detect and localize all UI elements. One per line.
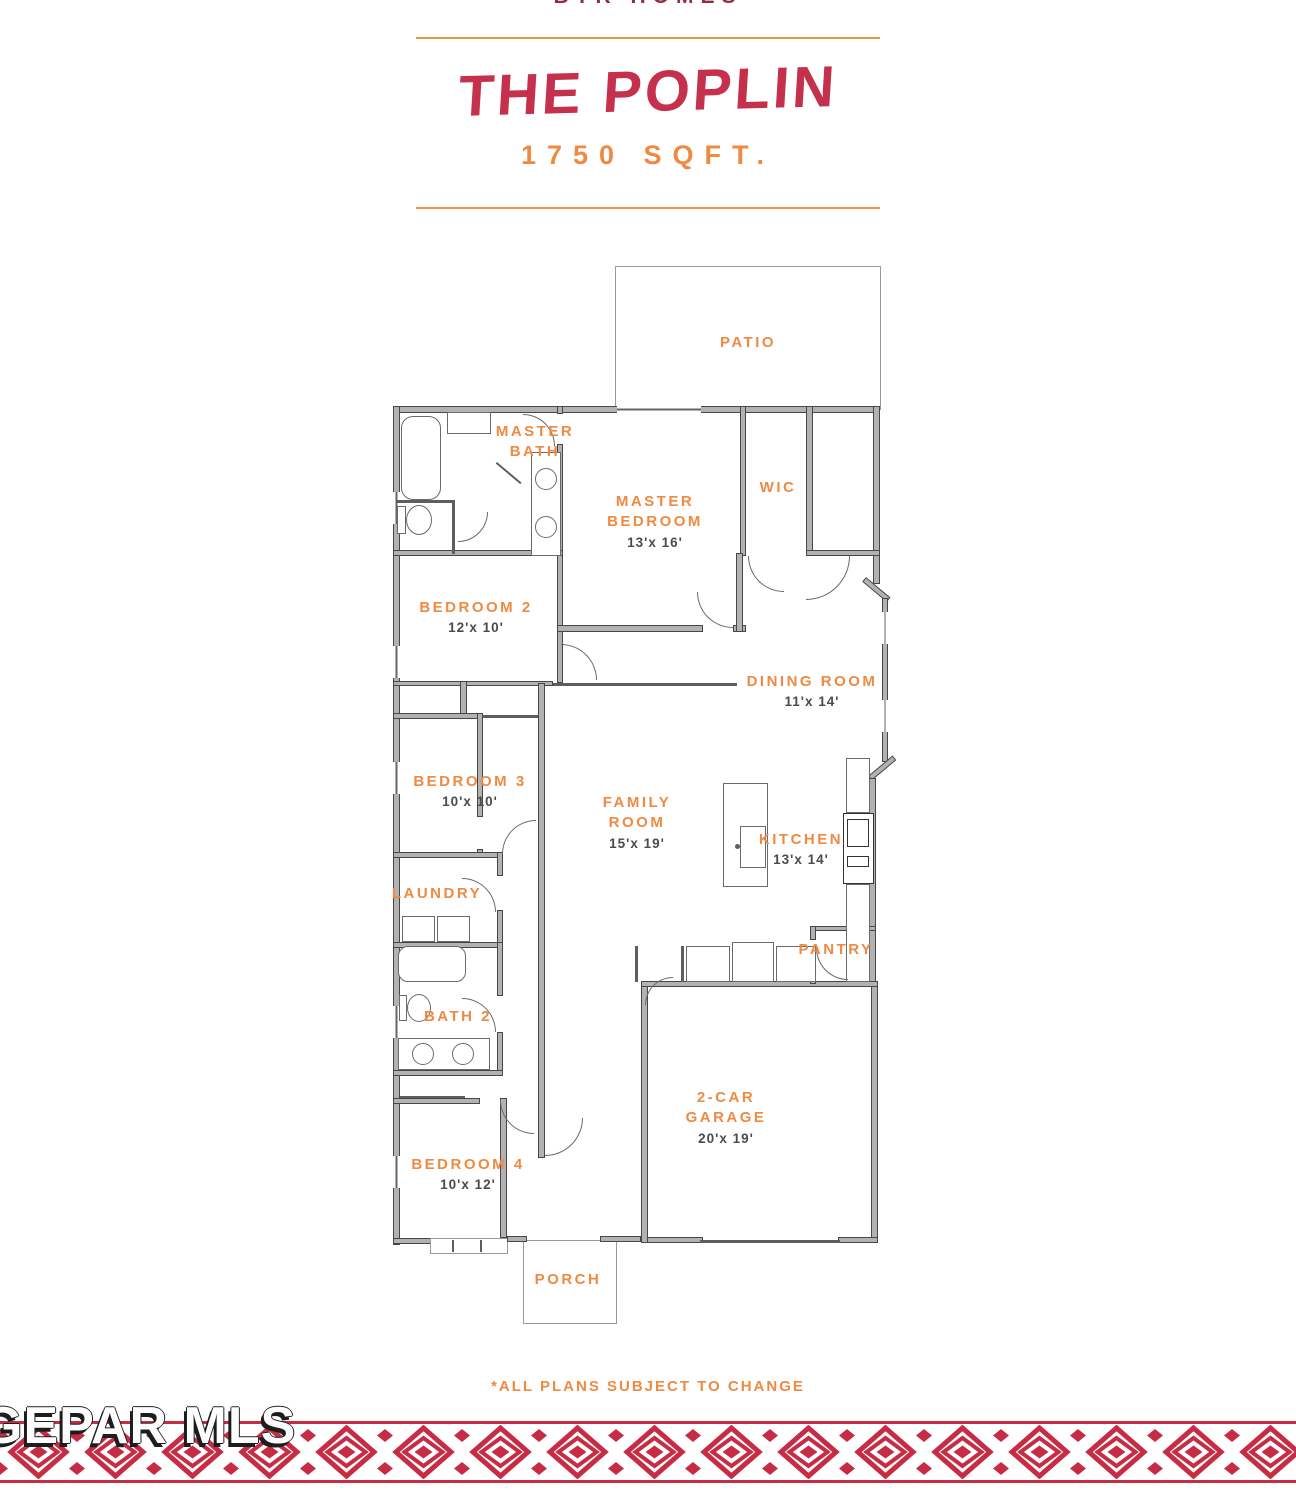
wall-segment (736, 553, 743, 632)
sink (535, 516, 557, 538)
wall-segment (507, 1236, 527, 1242)
wall-segment (873, 406, 880, 584)
wall-segment (838, 1237, 878, 1243)
wall-segment (871, 985, 878, 1243)
wall-segment (393, 1098, 480, 1104)
room-label-kitchen: KITCHEN 13'x 14' (759, 830, 843, 867)
wall-line (635, 946, 638, 982)
garage-door (700, 1240, 840, 1243)
wall-segment (557, 625, 703, 632)
wall-segment (600, 1236, 641, 1242)
wall-line (681, 946, 684, 982)
room-label-bedroom3: BEDROOM 3 10'x 10' (413, 772, 526, 809)
plan-sqft: 1750 SQFT. (0, 140, 1296, 171)
room-label-bedroom2: BEDROOM 2 12'x 10' (419, 598, 532, 635)
bathtub (401, 416, 441, 500)
builder-brand-cutoff: BTR HOMES (0, 0, 1296, 9)
room-label-pantry: PANTRY (799, 940, 874, 960)
wall-line (553, 683, 737, 686)
room-label-patio: PATIO (720, 333, 776, 353)
dryer (437, 916, 470, 942)
bay-window (430, 1238, 508, 1254)
wall-line (396, 500, 454, 503)
wall-segment (497, 910, 503, 946)
room-label-master-bath: MASTER BATH (489, 422, 581, 463)
sink (535, 468, 557, 490)
faucet (735, 844, 740, 849)
kitchen-counter (846, 758, 870, 813)
header-rule-bottom (416, 207, 880, 209)
room-label-laundry: LAUNDRY (392, 884, 482, 904)
window (617, 406, 701, 413)
wall-segment (393, 852, 503, 858)
wall-segment (393, 681, 553, 686)
toilet (397, 506, 406, 534)
window (393, 1156, 400, 1188)
toilet (406, 505, 432, 535)
room-label-bedroom4: BEDROOM 4 10'x 12' (411, 1155, 524, 1192)
window (882, 612, 888, 644)
wall-segment (810, 926, 816, 940)
wall-segment (641, 1237, 703, 1243)
bay-window-ticks (452, 1240, 454, 1252)
door-arc (458, 512, 488, 542)
wall-segment (557, 406, 563, 414)
room-label-dining: DINING ROOM 11'x 14' (747, 672, 878, 709)
wall-line (483, 715, 543, 718)
floor-plan-page: BTR HOMES THE POPLIN 1750 SQFT. (0, 0, 1296, 1494)
wall-segment (740, 406, 746, 556)
room-label-master-bedroom: MASTER BEDROOM 13'x 16' (589, 492, 721, 550)
locker (732, 942, 774, 982)
toilet (399, 995, 407, 1021)
window (882, 700, 888, 732)
door-arc (545, 1118, 583, 1156)
stove-burners (847, 819, 869, 847)
sink (412, 1043, 434, 1065)
shower-shelf (447, 412, 491, 434)
door-leaf (496, 462, 522, 484)
locker (686, 946, 730, 982)
wall-segment (497, 852, 503, 876)
washer (402, 916, 435, 942)
disclaimer-text: *ALL PLANS SUBJECT TO CHANGE (0, 1378, 1296, 1395)
window (393, 646, 400, 678)
door-arc (806, 556, 850, 600)
room-label-garage: 2-CAR GARAGE 20'x 19' (671, 1088, 781, 1146)
sink (452, 1043, 474, 1065)
door-arc (748, 556, 784, 592)
room-label-porch: PORCH (535, 1270, 602, 1290)
door-arc (561, 644, 597, 680)
bathtub (398, 946, 466, 982)
room-label-bath2: BATH 2 (424, 1007, 492, 1027)
door-arc (697, 592, 733, 628)
room-label-wic: WIC (760, 478, 797, 498)
door-arc (502, 820, 536, 854)
wall-segment (393, 1070, 503, 1076)
bay-window-ticks (480, 1240, 482, 1252)
wall-segment (497, 942, 503, 996)
wall-segment (538, 683, 545, 1158)
kitchen-counter (846, 884, 870, 982)
stove-panel (847, 856, 869, 867)
wall-line (452, 500, 455, 554)
mls-watermark: GEPAR MLS (0, 1396, 296, 1456)
wall-segment (393, 713, 483, 719)
room-label-family: FAMILY ROOM 15'x 19' (589, 793, 685, 851)
plan-title: THE POPLIN (0, 41, 1296, 142)
wall-segment (806, 406, 813, 556)
wall-segment (641, 985, 648, 1243)
header-rule-top (416, 37, 880, 39)
window (393, 762, 400, 794)
